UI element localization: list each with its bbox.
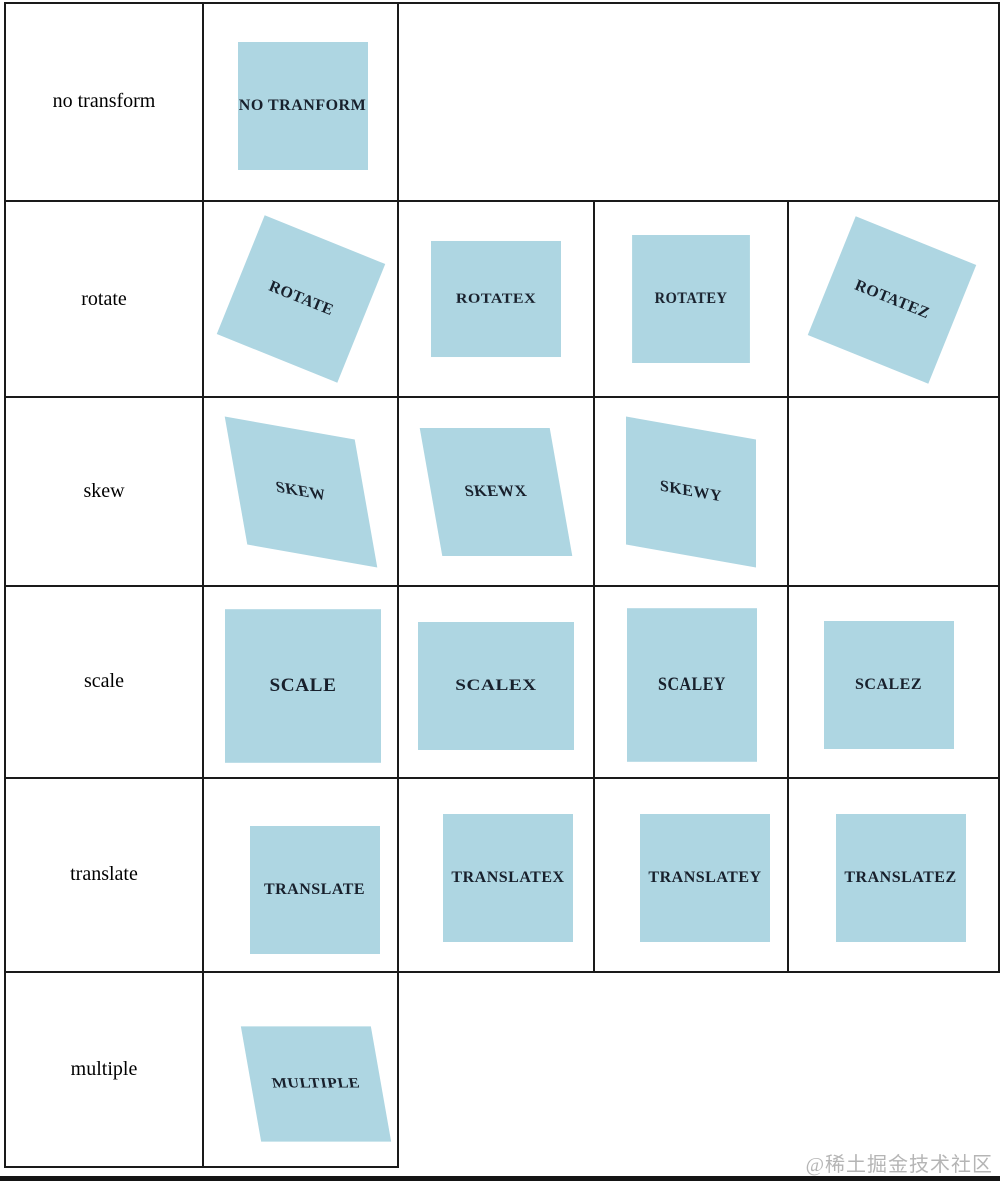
cell-translate: TRANSLATE bbox=[203, 778, 398, 973]
demo-box-skewy: SKEWY bbox=[626, 416, 756, 567]
cell-empty-skew-row bbox=[788, 397, 999, 586]
cell-rotatey: ROTATEY bbox=[594, 201, 788, 398]
demo-box-scalex: SCALEX bbox=[418, 622, 574, 750]
demo-box-multiple: MULTIPLE bbox=[240, 1026, 390, 1141]
demo-box-skewx: SKEWX bbox=[420, 428, 573, 556]
demo-box-rotatey: ROTATEY bbox=[632, 235, 750, 363]
demo-box-translate: TRANSLATE bbox=[250, 826, 380, 954]
table-row-skew: skew SKEW SKEWX SKEWY bbox=[5, 397, 999, 586]
table-row-translate: translate TRANSLATE TRANSLATEX TRANSLATE… bbox=[5, 778, 999, 973]
row-label-skew: skew bbox=[5, 397, 203, 586]
cell-skewy: SKEWY bbox=[594, 397, 788, 586]
cell-translatex: TRANSLATEX bbox=[398, 778, 594, 973]
row-label-rotate: rotate bbox=[5, 201, 203, 398]
bottom-edge-line bbox=[0, 1176, 1000, 1181]
row-label-multiple: multiple bbox=[5, 972, 203, 1167]
cell-scalez: SCALEZ bbox=[788, 586, 999, 778]
cell-translatey: TRANSLATEY bbox=[594, 778, 788, 973]
cell-scale: SCALE bbox=[203, 586, 398, 778]
cell-empty-row1 bbox=[398, 3, 999, 201]
row-label-translate: translate bbox=[5, 778, 203, 973]
watermark-text: @稀土掘金技术社区 bbox=[806, 1148, 993, 1177]
cell-scaley: SCALEY bbox=[594, 586, 788, 778]
demo-box-translatey: TRANSLATEY bbox=[640, 814, 770, 942]
open-area-row6 bbox=[398, 972, 999, 1167]
table-row-scale: scale SCALE SCALEX SCALEY SCALEZ bbox=[5, 586, 999, 778]
cell-rotatex: ROTATEX bbox=[398, 201, 594, 398]
cell-rotatez: ROTATEZ bbox=[788, 201, 999, 398]
cell-skew: SKEW bbox=[203, 397, 398, 586]
demo-box-translatez: TRANSLATEZ bbox=[836, 814, 966, 942]
cell-translatez: TRANSLATEZ bbox=[788, 778, 999, 973]
cell-multiple: MULTIPLE bbox=[203, 972, 398, 1167]
demo-box-scale: SCALE bbox=[225, 609, 381, 763]
table-row-rotate: rotate ROTATE ROTATEX ROTATEY ROTATEZ bbox=[5, 201, 999, 398]
cell-scalex: SCALEX bbox=[398, 586, 594, 778]
page: no transform NO TRANFORM rotate ROTATE R… bbox=[0, 0, 1000, 1181]
demo-box-scalez: SCALEZ bbox=[824, 621, 954, 749]
cell-no-transform: NO TRANFORM bbox=[203, 3, 398, 201]
demo-box-no-transform: NO TRANFORM bbox=[238, 42, 368, 170]
demo-box-rotatez: ROTATEZ bbox=[807, 216, 975, 383]
row-label-scale: scale bbox=[5, 586, 203, 778]
demo-box-scaley: SCALEY bbox=[627, 608, 757, 762]
cell-skewx: SKEWX bbox=[398, 397, 594, 586]
demo-box-rotatex: ROTATEX bbox=[431, 241, 561, 357]
demo-box-translatex: TRANSLATEX bbox=[443, 814, 573, 942]
transform-demo-table: no transform NO TRANFORM rotate ROTATE R… bbox=[4, 2, 1000, 1168]
demo-box-rotate: ROTATE bbox=[216, 215, 384, 382]
table-row-no-transform: no transform NO TRANFORM bbox=[5, 3, 999, 201]
table-row-multiple: multiple MULTIPLE bbox=[5, 972, 999, 1167]
row-label-no-transform: no transform bbox=[5, 3, 203, 201]
demo-box-skew: SKEW bbox=[224, 416, 377, 567]
cell-rotate: ROTATE bbox=[203, 201, 398, 398]
